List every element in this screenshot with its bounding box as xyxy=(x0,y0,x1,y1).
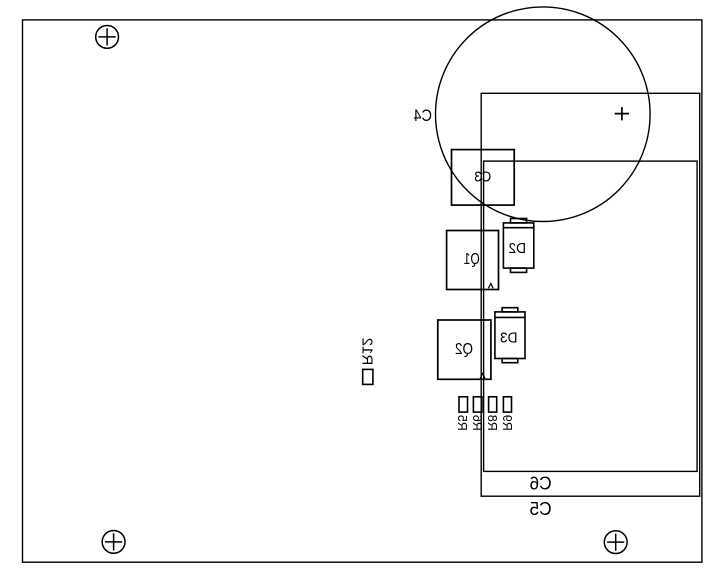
svg-text:Q1: Q1 xyxy=(464,251,480,268)
svg-text:C6: C6 xyxy=(530,474,552,494)
svg-text:D2: D2 xyxy=(508,240,526,257)
svg-text:D3: D3 xyxy=(500,330,518,347)
svg-text:R12: R12 xyxy=(358,338,375,366)
svg-text:R6: R6 xyxy=(470,415,484,431)
svg-text:R5: R5 xyxy=(455,415,469,431)
svg-text:Q2: Q2 xyxy=(455,341,473,358)
svg-text:C4: C4 xyxy=(413,107,432,125)
svg-text:R9: R9 xyxy=(500,415,514,431)
svg-text:C5: C5 xyxy=(530,499,552,519)
svg-text:R8: R8 xyxy=(485,415,499,431)
svg-text:C3: C3 xyxy=(474,170,491,186)
